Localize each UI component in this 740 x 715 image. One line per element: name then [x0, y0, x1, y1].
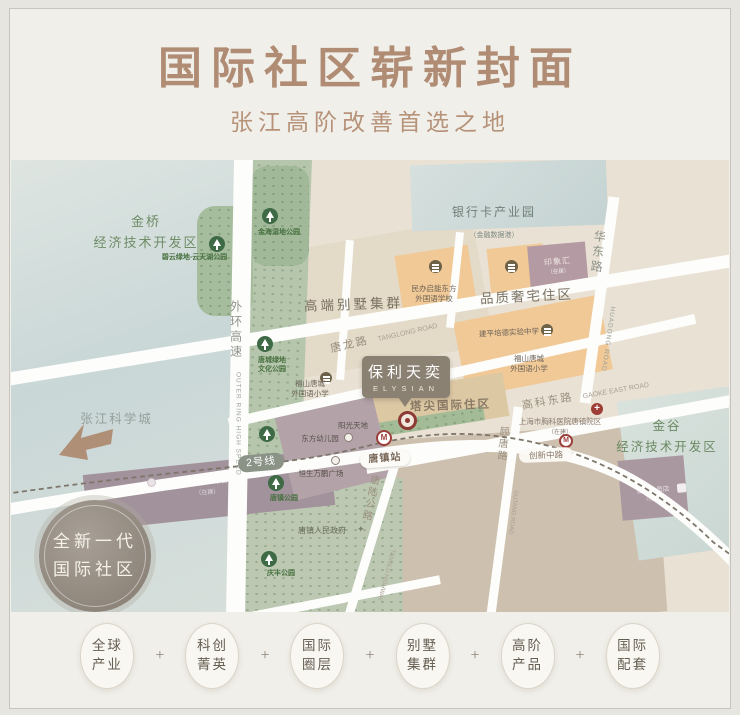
plus-separator: + [471, 647, 480, 665]
park-jinhai-shape [251, 166, 309, 266]
construction-dot-icon [147, 478, 156, 487]
callout-pointer [398, 397, 412, 407]
hospital-label: 上海市胸科医院唐镇院区 （在建） [511, 417, 609, 438]
park-jinhai-label: 金海湿地公园 [241, 228, 317, 237]
hengsheng-label: 恒生万鹏广场 [292, 469, 350, 479]
plus-separator: + [155, 647, 164, 665]
mall-dot-icon [331, 456, 340, 465]
road-waihuan-cn-label: 外环高速 [227, 300, 243, 360]
area-jinqiao-label: 金桥 经济技术开发区 [66, 212, 226, 254]
plus-separator: + [365, 647, 374, 665]
mall-dot-icon [344, 433, 353, 442]
school-icon [429, 260, 442, 273]
value-oval: 国际圈层 [290, 623, 344, 689]
school-fushan-right-label: 福山唐城 外国语小学 [503, 354, 555, 374]
metro-logo-icon: M [376, 430, 392, 446]
area-bankcard-label: 银行卡产业园 （金融数据港） [429, 202, 559, 244]
park-biyun-label: 碧云绿地-云天湖公园 [147, 253, 242, 262]
yangguang-label: 阳光天地 [329, 421, 377, 431]
sams-icon [676, 483, 686, 493]
tree-icon [268, 475, 284, 491]
park-tangzhen-label: 唐镇公园 [254, 494, 314, 503]
value-oval: 科创菁英 [185, 623, 239, 689]
value-oval: 国际配套 [606, 623, 660, 689]
location-map: 印象汇 （在建） 山姆会员店 （在建） 碧云绿地-云天湖公园 金海湿地公园 唐城… [11, 160, 729, 612]
tree-icon [262, 208, 278, 224]
school-icon [541, 324, 553, 336]
bank-icon [505, 260, 518, 273]
government-label: 唐镇人民政府 [290, 526, 354, 536]
tree-icon [259, 426, 275, 442]
block-sams: 山姆会员店 （在建） [618, 455, 689, 521]
value-oval: 别墅集群 [396, 623, 450, 689]
plus-separator: + [576, 647, 585, 665]
page-subtitle: 张江高阶改善首选之地 [0, 103, 740, 137]
station-chuangxin-badge: 创新中路 [519, 447, 573, 463]
project-name: 保利天奕 [362, 361, 450, 382]
tree-icon [257, 336, 273, 352]
value-oval: 全球产业 [80, 623, 134, 689]
project-name-en: ELYSIAN [362, 384, 450, 393]
value-props-row: 全球产业 + 科创菁英 + 国际圈层 + 别墅集群 + 高阶产品 + 国际配套 [0, 612, 740, 700]
new-generation-badge: 全新一代 国际社区 [39, 500, 151, 612]
government-star-icon: ✦ [357, 524, 365, 536]
plus-separator: + [260, 647, 269, 665]
area-jingu-label: 金谷 经济技术开发区 [611, 416, 723, 459]
value-oval: 高阶产品 [501, 623, 555, 689]
project-pin-icon [398, 411, 417, 430]
park-tangcheng-label: 唐城绿地 文化公园 [243, 356, 301, 374]
page-title: 国际社区崭新封面 [0, 32, 740, 96]
school-fushan-left-label: 福山唐城 外国语小学 [285, 379, 335, 399]
park-qingfeng-label: 庆丰公园 [251, 569, 311, 578]
school-qineng-label: 民办启能东方 外国语学校 [397, 284, 471, 304]
dongfang-label: 东方幼儿园 [296, 434, 344, 444]
hospital-cross-icon: + [591, 403, 603, 415]
zhangjiang-label: 张江科学城 [69, 411, 164, 427]
project-callout: 保利天奕 ELYSIAN [362, 356, 450, 398]
tree-icon [261, 551, 277, 567]
